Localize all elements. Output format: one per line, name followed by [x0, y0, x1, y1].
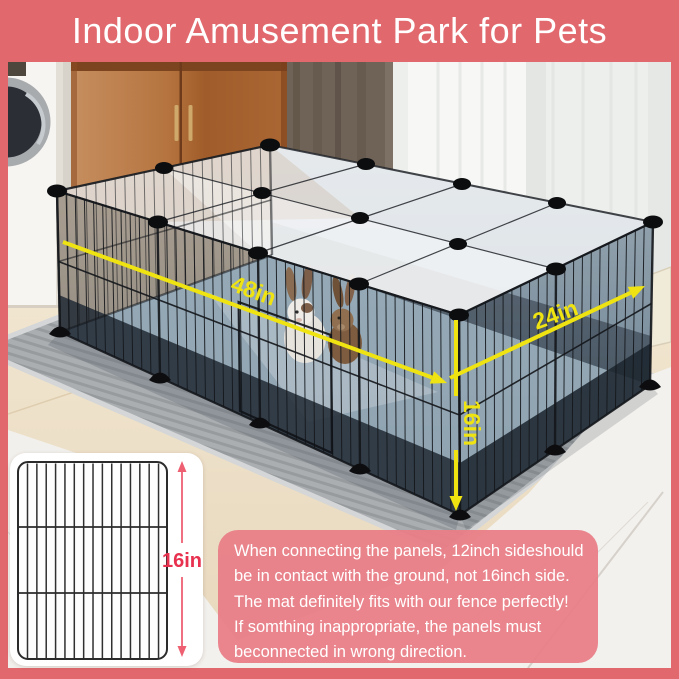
arrowhead-up [178, 461, 187, 472]
panel-diagram: 16in [10, 453, 203, 666]
washing-machine-panel [8, 62, 26, 76]
cabinet-top [71, 62, 287, 71]
note-line: When connecting the panels, 12inch sides… [234, 539, 598, 564]
banner: Indoor Amusement Park for Pets [0, 0, 679, 62]
cabinet-handle-left [175, 105, 179, 141]
dim-label-16in: 16in [459, 400, 485, 446]
note-line: beconnected in wrong direction. [234, 640, 598, 665]
arrowhead-down [178, 646, 187, 657]
note-line: If somthing inappropriate, the panels mu… [234, 615, 598, 640]
panel-diagram-card: 16in [10, 453, 203, 666]
note-card: When connecting the panels, 12inch sides… [218, 530, 598, 663]
note-line: The mat definitely fits with our fence p… [234, 590, 598, 615]
rabbit-eye-patch [301, 303, 313, 313]
rabbit-eye [338, 317, 341, 320]
rabbit-eye [295, 310, 298, 313]
panel-height-label: 16in [162, 550, 202, 572]
rabbit-nose [296, 318, 302, 322]
banner-title: Indoor Amusement Park for Pets [72, 10, 607, 52]
note-line: be in contact with the ground, not 16inc… [234, 564, 598, 589]
product-image: Indoor Amusement Park for Pets [0, 0, 679, 679]
cabinet-handle-right [189, 105, 193, 141]
